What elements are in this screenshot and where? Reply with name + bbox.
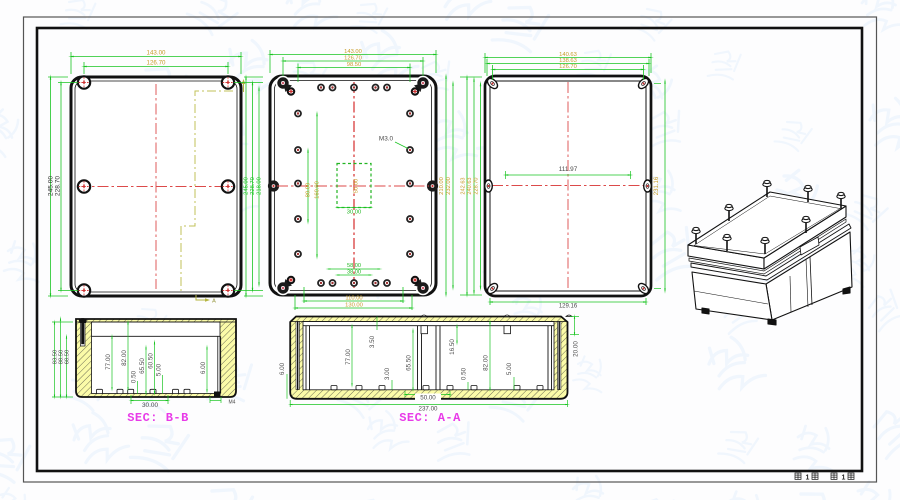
svg-text:228.70: 228.70 — [250, 177, 256, 195]
svg-text:50.00: 50.00 — [420, 395, 436, 402]
svg-text:143.00: 143.00 — [344, 49, 362, 55]
svg-text:38.00: 38.00 — [347, 270, 361, 276]
svg-text:80.00: 80.00 — [306, 183, 312, 198]
svg-text:6.00: 6.00 — [200, 361, 207, 374]
svg-text:5.00: 5.00 — [156, 363, 163, 376]
svg-text:60.50: 60.50 — [148, 353, 155, 369]
svg-text:231.16: 231.16 — [654, 176, 660, 195]
svg-text:82.00: 82.00 — [483, 355, 490, 371]
svg-text:130.00: 130.00 — [345, 303, 363, 309]
svg-text:6.00: 6.00 — [279, 362, 286, 375]
svg-text:111.97: 111.97 — [559, 166, 578, 173]
svg-text:129.16: 129.16 — [559, 304, 578, 310]
svg-text:58.00: 58.00 — [347, 263, 361, 269]
svg-text:126.70: 126.70 — [147, 60, 166, 67]
svg-text:3.50: 3.50 — [369, 335, 376, 348]
svg-text:0.50: 0.50 — [131, 370, 138, 383]
svg-text:242.63: 242.63 — [461, 177, 467, 194]
svg-text:65.50: 65.50 — [139, 358, 146, 374]
svg-text:50.00: 50.00 — [354, 179, 360, 194]
svg-text:232.00: 232.00 — [446, 177, 452, 195]
svg-text:82.00: 82.00 — [121, 350, 128, 366]
svg-text:126.70: 126.70 — [559, 64, 577, 70]
svg-text:143.00: 143.00 — [147, 50, 166, 57]
svg-text:30.00: 30.00 — [347, 210, 362, 216]
svg-text:30.00: 30.00 — [142, 402, 158, 409]
svg-text:77.00: 77.00 — [105, 354, 112, 370]
svg-text:245.00: 245.00 — [244, 177, 250, 195]
svg-text:SEC: A-A: SEC: A-A — [399, 411, 461, 425]
svg-text:210.00: 210.00 — [439, 177, 445, 195]
svg-text:1: 1 — [842, 475, 846, 482]
svg-text:0.50: 0.50 — [461, 367, 468, 380]
svg-text:98.50: 98.50 — [347, 62, 362, 68]
svg-text:240.63: 240.63 — [467, 177, 473, 194]
svg-text:160.00: 160.00 — [315, 181, 321, 199]
svg-text:228.70: 228.70 — [55, 176, 62, 197]
svg-text:5.00: 5.00 — [506, 362, 513, 375]
svg-text:110.00: 110.00 — [345, 296, 362, 302]
svg-text:M4: M4 — [229, 400, 236, 406]
svg-text:3.00: 3.00 — [384, 367, 391, 380]
svg-text:65.50: 65.50 — [406, 355, 413, 371]
svg-text:245.00: 245.00 — [48, 176, 55, 197]
svg-text:126.70: 126.70 — [344, 56, 362, 62]
svg-text:SEC: B-B: SEC: B-B — [127, 411, 189, 425]
svg-text:1: 1 — [806, 475, 810, 482]
svg-text:228.70: 228.70 — [474, 177, 480, 194]
svg-text:218.00: 218.00 — [257, 177, 263, 195]
svg-text:M3.0: M3.0 — [379, 136, 394, 143]
svg-text:77.00: 77.00 — [345, 349, 352, 365]
svg-text:68.50: 68.50 — [65, 350, 71, 365]
svg-text:A: A — [212, 299, 216, 305]
svg-text:20.00: 20.00 — [573, 341, 580, 357]
svg-text:16.50: 16.50 — [449, 339, 456, 355]
